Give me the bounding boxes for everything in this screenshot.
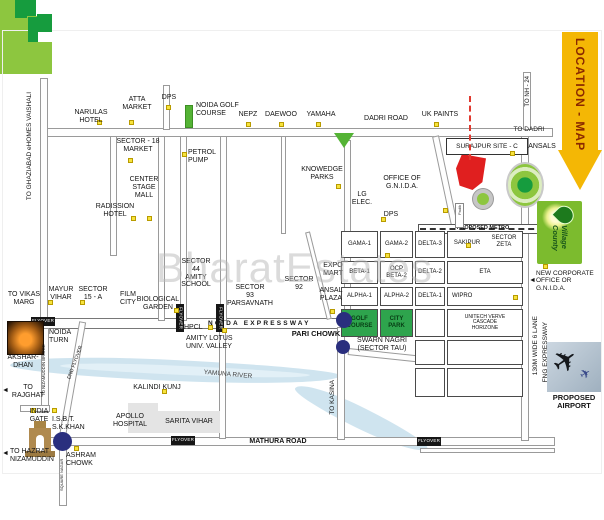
poi-marker-icon xyxy=(74,446,79,451)
dps2-label: DPS xyxy=(380,211,402,219)
airport-photo: ✈ ✈ xyxy=(547,342,601,392)
to-rajghat-label: TO RAJGHAT xyxy=(8,384,48,400)
noida-golf-green-bar xyxy=(185,105,193,128)
poi-marker-icon xyxy=(182,152,187,157)
poi-marker-icon xyxy=(543,264,548,269)
akshardham-photo xyxy=(7,321,44,355)
dps-label: DPS xyxy=(158,94,180,102)
left-arrow-icon: ◄ xyxy=(2,387,9,394)
poi-marker-icon xyxy=(510,151,515,156)
city-road-2 xyxy=(180,136,187,321)
empty-block xyxy=(447,340,523,365)
nepz-label: NEPZ xyxy=(235,111,261,119)
empty-block xyxy=(447,368,523,397)
banner-arrow-tip xyxy=(558,150,602,190)
poi-marker-icon xyxy=(434,122,439,127)
new-corporate-office-label: NEW CORPORATE OFFICE OR G.N.I.D.A. xyxy=(536,270,602,292)
roundabout xyxy=(473,189,493,209)
surajpur-site-c-label: SURAJPUR SITE - C xyxy=(456,143,518,150)
fng-expressway-label-1: 130M WIDE 6 LANE xyxy=(532,316,539,375)
isbt-label: I.S.B.T. S.K.KHAN xyxy=(52,416,98,432)
hpcl-label: HPCL xyxy=(184,324,210,332)
proposed-airport-label: PROPOSED AIRPORT xyxy=(546,394,602,411)
airplane-icon: ✈ xyxy=(577,364,594,383)
noida-turn-label: NOIDA TURN xyxy=(49,329,81,345)
uk-paints-label: UK PAINTS xyxy=(421,111,459,119)
petrol-pump-label: PETROL PUMP xyxy=(188,149,220,165)
poi-marker-icon xyxy=(246,122,251,127)
poi-marker-icon xyxy=(279,122,284,127)
padik-label: Padik xyxy=(457,205,462,215)
poi-marker-icon xyxy=(316,122,321,127)
poi-marker-icon xyxy=(129,120,134,125)
to-nh24-label: TO NH - 24 xyxy=(525,76,532,107)
dadri-road xyxy=(44,128,553,137)
akshardham-label: AKSHAR- DHAN xyxy=(2,354,44,370)
empty-block xyxy=(415,309,445,337)
sector-delta2: DELTA-2 xyxy=(415,261,445,284)
yamaha-label: YAMAHA xyxy=(304,111,338,119)
flyover-tag: FLYOVER xyxy=(417,437,441,446)
sector93-label: SECTOR 93 PARSAVNATH xyxy=(224,284,276,307)
amity-lotus-label: AMITY LOTUS UNIV. VALLEY xyxy=(186,335,240,351)
empty-block xyxy=(415,368,445,397)
banner-label: LOCATION - MAP xyxy=(573,38,587,151)
left-arrow-icon: ◄ xyxy=(529,277,536,284)
poi-marker-icon xyxy=(128,158,133,163)
sector-delta3: DELTA-3 xyxy=(415,231,445,258)
poi-marker-icon xyxy=(466,243,471,248)
swarn-nagri-dot xyxy=(336,340,350,354)
poi-marker-icon xyxy=(336,184,341,189)
city-park-block: CITY PARK xyxy=(380,309,413,337)
narulas-hotel-label: NARULAS HOTEL xyxy=(62,109,120,125)
sector-gama1: GAMA-1 xyxy=(341,231,378,258)
swarn-nagri-label: SWARN NAGRI (SECTOR TAU) xyxy=(352,337,412,353)
empty-block xyxy=(415,340,445,365)
mayur-vihar-label: MAYUR VIHAR xyxy=(44,286,78,302)
ashram-chowk-label: ASHRAM CHOWK xyxy=(66,452,102,468)
sector44-amity-label: SECTOR 44 AMITY SCHOOL xyxy=(176,258,216,289)
village-county-label: Village County xyxy=(551,225,569,264)
fng-expressway-label-2: FNG EXPRESSWAY xyxy=(542,322,549,382)
city-road-1 xyxy=(158,136,165,321)
poi-marker-icon xyxy=(513,295,518,300)
dadri-road-label: DADRI ROAD xyxy=(362,115,410,123)
sarita-vihar-label: SARITA VIHAR xyxy=(160,418,218,426)
flyover-tag: FLYOVER xyxy=(171,436,195,445)
padik-box: Padik xyxy=(455,203,464,228)
location-map: PROPOSED METRO FLYOVER FLYOVER FLYOVER F… xyxy=(0,0,604,520)
sector18-road xyxy=(110,136,117,256)
ansals-label: ANSALS xyxy=(526,143,558,151)
sector-delta1: DELTA-1 xyxy=(415,287,445,306)
kalindi-kunj-label: KALINDI KUNJ xyxy=(128,384,186,392)
poi-marker-icon xyxy=(222,328,227,333)
green-cell xyxy=(37,14,52,32)
expo-mart-label: EXPO MART xyxy=(318,262,348,278)
poi-marker-icon xyxy=(147,216,152,221)
mathura-road-label: MATHURA ROAD xyxy=(246,438,310,446)
location-map-banner: LOCATION - MAP xyxy=(558,32,602,192)
sector-ocp-beta2: OCP BETA-2 xyxy=(380,261,413,284)
sector-eta: ETA xyxy=(447,261,523,284)
left-arrow-icon: ◄ xyxy=(2,450,9,457)
sector-zeta-label: SECTOR ZETA xyxy=(487,235,521,248)
green-cell xyxy=(16,0,36,16)
daewoo-label: DAEWOO xyxy=(264,111,298,119)
mathura-road-bar2 xyxy=(420,448,555,453)
junction-green-triangle xyxy=(334,133,354,148)
center-stage-mall-label: CENTER STAGE MALL xyxy=(126,176,162,199)
apollo-hospital-label: APOLLO HOSPITAL xyxy=(108,413,152,429)
square-nagar-label: SQUARE NAGAR xyxy=(60,450,64,500)
to-vikas-marg-label: TO VIKAS MARG xyxy=(4,291,44,307)
sector92-label: SECTOR 92 xyxy=(283,276,315,292)
sector15a-label: SECTOR 15 - A xyxy=(76,286,110,302)
poi-marker-icon xyxy=(385,253,390,258)
lg-elec-label: LG ELEC. xyxy=(348,191,376,207)
city-road-4 xyxy=(281,136,286,234)
sector-alpha2: ALPHA-2 xyxy=(380,287,413,306)
village-county-logo: Village County xyxy=(537,201,582,264)
sector-alpha1: ALPHA-1 xyxy=(341,287,378,306)
sector18-market-label: SECTOR - 18 MARKET xyxy=(113,138,163,154)
to-kasina-label: TO KASINA xyxy=(329,380,336,415)
poi-marker-icon xyxy=(330,309,335,314)
sector-wipro: WIPRO xyxy=(447,287,523,306)
to-ghaziabad-label: TO GHAZIABAD eHOMES VAISHALI xyxy=(26,92,33,200)
atta-market-label: ATTA MARKET xyxy=(116,96,158,112)
biological-garden-label: BIOLOGICAL GARDEN xyxy=(136,296,180,312)
gnida-office-label: OFFICE OF G.N.I.D.A. xyxy=(378,175,426,191)
to-dadri-label: TO DADRI xyxy=(508,126,550,133)
noida-expressway-label: NOIDA EXPRESSWAY xyxy=(208,320,348,327)
unitech-block: UNITECH VERVE CASCADE HORIZONE xyxy=(447,309,523,337)
poi-marker-icon xyxy=(166,105,171,110)
ansal-plaza-label: ANSAL PLAZA xyxy=(316,287,346,303)
poi-marker-icon xyxy=(443,208,448,213)
india-gate-label: INDIA GATE xyxy=(22,408,56,424)
knowledge-parks-label: KNOWEDGE PARKS xyxy=(300,166,344,182)
surajpur-site-c-box: SURAJPUR SITE - C xyxy=(446,138,528,155)
site-leader-line xyxy=(469,96,471,160)
pari-chowk-label: PARI CHOWK xyxy=(288,330,344,338)
radisson-hotel-label: RADISSION HOTEL xyxy=(94,203,136,219)
